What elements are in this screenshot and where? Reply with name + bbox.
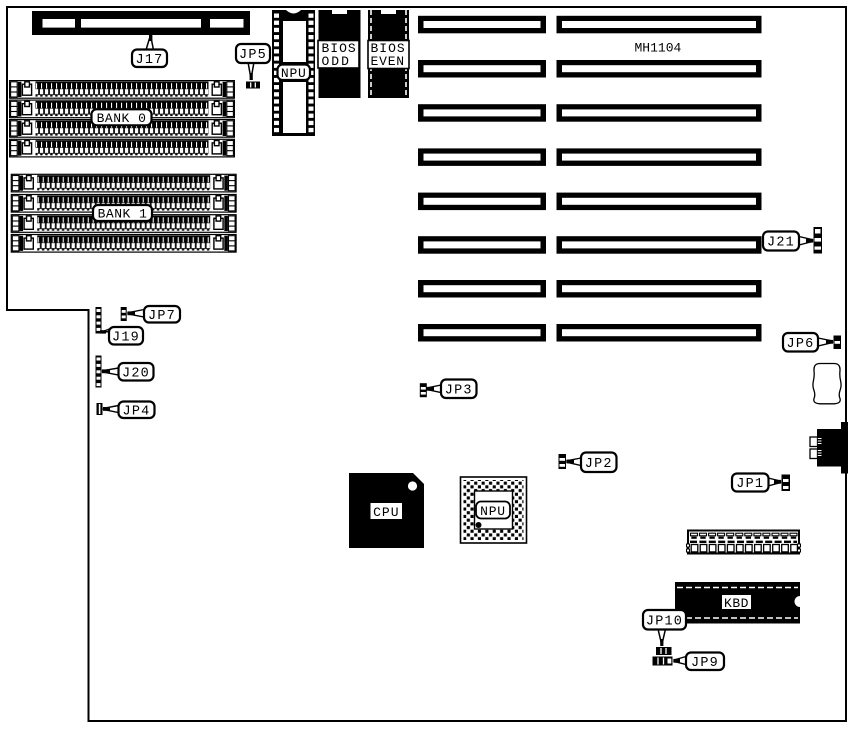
svg-text:JP9: JP9 (691, 656, 719, 671)
svg-text:J17: J17 (136, 53, 164, 68)
svg-text:BANK 0: BANK 0 (97, 111, 147, 126)
svg-text:EVEN: EVEN (371, 54, 405, 69)
svg-text:JP3: JP3 (445, 383, 473, 398)
svg-text:JP1: JP1 (736, 477, 764, 492)
svg-text:NPU: NPU (281, 66, 307, 81)
svg-text:JP7: JP7 (148, 309, 176, 324)
svg-text:NPU: NPU (480, 504, 506, 519)
svg-text:BANK 1: BANK 1 (98, 207, 148, 222)
svg-text:KBD: KBD (724, 596, 749, 611)
svg-text:MH1104: MH1104 (635, 41, 682, 56)
svg-text:JP4: JP4 (123, 404, 151, 419)
svg-text:J20: J20 (122, 366, 150, 381)
svg-text:J19: J19 (112, 330, 140, 345)
svg-text:CPU: CPU (373, 505, 399, 520)
svg-text:J21: J21 (767, 236, 795, 251)
svg-text:JP10: JP10 (646, 614, 683, 629)
svg-text:JP6: JP6 (787, 337, 815, 352)
svg-text:JP2: JP2 (585, 457, 613, 472)
svg-text:JP5: JP5 (239, 48, 267, 63)
svg-text:ODD: ODD (322, 54, 351, 69)
